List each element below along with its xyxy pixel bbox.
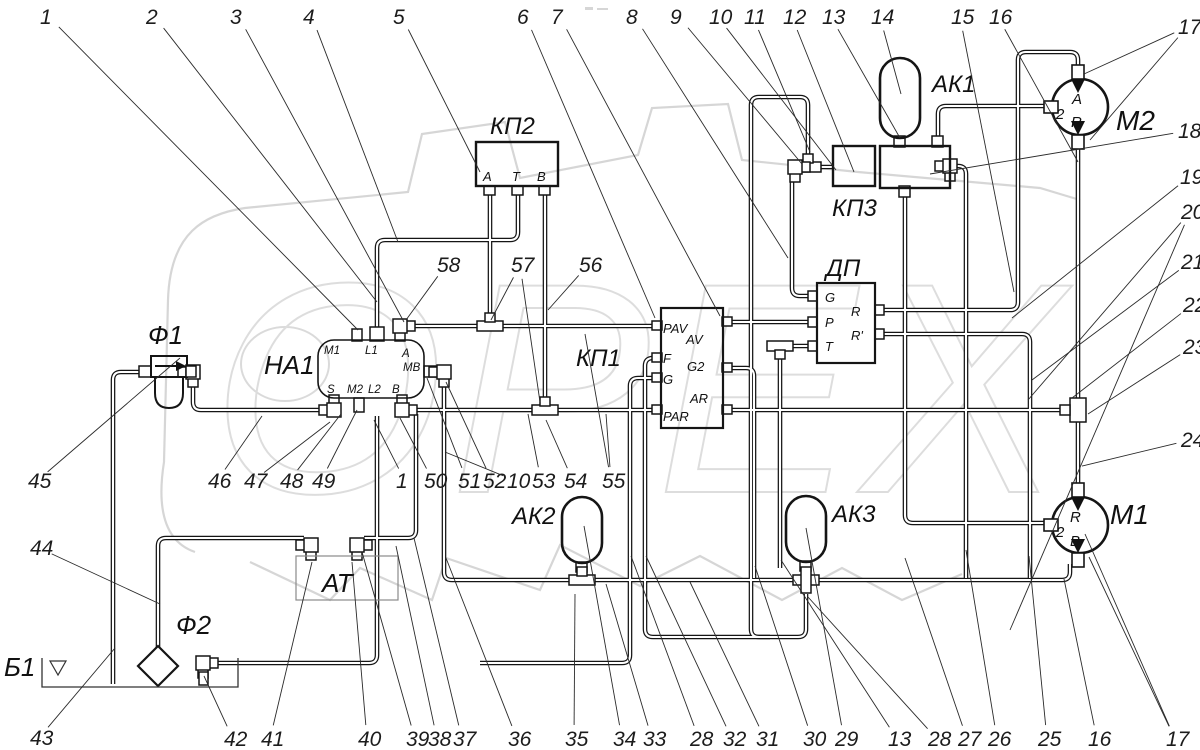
port-kp1-5: AR — [689, 391, 708, 406]
port-m2-2: R — [1071, 114, 1082, 131]
callout-28-58: 28 — [927, 728, 952, 750]
callout-54-37: 54 — [564, 470, 587, 493]
port-kp2-0: А — [482, 169, 492, 184]
callout-42-42: 42 — [224, 728, 248, 750]
callout-39-45: 39 — [406, 728, 430, 750]
label-at: АТ — [320, 568, 355, 598]
callout-45-24: 45 — [28, 470, 52, 493]
callout-47-28: 47 — [244, 470, 269, 493]
port-m1-2: B — [1070, 533, 1080, 550]
port-kp1-2: F — [663, 351, 672, 366]
port-dp-3: R — [851, 304, 860, 319]
callout-55-38: 55 — [602, 470, 626, 493]
callout-17-63: 17 — [1166, 728, 1191, 750]
hydraulic-schematic: ОРЕХКП2АТВКП3НА1M1L1AMBSM2L2BКП1PAVAVFGG… — [0, 0, 1200, 750]
callout-48-29: 48 — [280, 470, 304, 493]
port-m1-1: R — [1070, 509, 1081, 526]
callout-58-39: 58 — [437, 254, 461, 277]
callout-19-18: 19 — [1180, 166, 1200, 189]
callout-14-13: 14 — [871, 6, 894, 29]
port-m2-0: 2 — [1055, 106, 1065, 123]
port-dp-0: G — [825, 290, 835, 305]
label-na1: НА1 — [264, 350, 315, 380]
callout-15-14: 15 — [951, 6, 975, 29]
callout-21-20: 21 — [1180, 251, 1200, 274]
label-kp1: КП1 — [576, 345, 621, 372]
callout-32-53: 32 — [723, 728, 747, 750]
callout-5-4: 5 — [393, 6, 405, 29]
callout-50-32: 50 — [424, 470, 448, 493]
callout-52-34: 52 — [483, 470, 507, 493]
callout-33-51: 33 — [643, 728, 667, 750]
callout-31-54: 31 — [756, 728, 779, 750]
port-na1-3: MB — [403, 362, 421, 374]
callout-3-2: 3 — [230, 6, 242, 29]
callout-4-3: 4 — [303, 6, 315, 29]
watermark-text: ОРЕХ — [211, 220, 1073, 556]
callout-10-35: 10 — [507, 470, 531, 493]
callout-26-60: 26 — [987, 728, 1012, 750]
port-dp-1: P — [825, 315, 834, 330]
callout-13-57: 13 — [888, 728, 912, 750]
callout-53-36: 53 — [532, 470, 556, 493]
port-dp-2: T — [825, 339, 834, 354]
callout-17-16: 17 — [1178, 16, 1200, 39]
callout-22-21: 22 — [1182, 294, 1200, 317]
label-m1: М1 — [1110, 499, 1149, 530]
callout-36-48: 36 — [508, 728, 532, 750]
callout-25-61: 25 — [1037, 728, 1062, 750]
callout-20-19: 20 — [1180, 201, 1200, 224]
callout-7-6: 7 — [551, 6, 564, 29]
label-ak3: АК3 — [830, 501, 876, 528]
callout-27-59: 27 — [957, 728, 983, 750]
callout-40-44: 40 — [358, 728, 382, 750]
callout-43-26: 43 — [30, 727, 54, 750]
label-ak2: АК2 — [510, 503, 556, 530]
callout-10-9: 10 — [709, 6, 733, 29]
callout-34-50: 34 — [613, 728, 636, 750]
callout-12-11: 12 — [783, 6, 807, 29]
callout-11-10: 11 — [744, 6, 766, 29]
port-kp2-1: Т — [512, 169, 521, 184]
port-kp1-1: AV — [685, 332, 704, 347]
port-na1-4: S — [327, 384, 335, 396]
label-f1: Ф1 — [148, 320, 183, 350]
callout-30-55: 30 — [803, 728, 827, 750]
callout-56-41: 56 — [579, 254, 603, 277]
callout-18-17: 18 — [1178, 120, 1200, 143]
port-kp2-2: В — [537, 169, 546, 184]
callout-1-0: 1 — [40, 6, 52, 29]
port-na1-1: L1 — [365, 345, 378, 357]
callout-16-62: 16 — [1088, 728, 1112, 750]
label-dp: ДП — [823, 255, 861, 282]
label-m2: М2 — [1116, 105, 1155, 136]
port-na1-2: A — [401, 348, 410, 360]
callout-41-43: 41 — [261, 728, 284, 750]
port-dp-4: R' — [851, 328, 863, 343]
callout-51-33: 51 — [458, 470, 481, 493]
label-b1: Б1 — [4, 652, 35, 682]
label-f2: Ф2 — [176, 610, 212, 640]
label-kp3: КП3 — [832, 195, 878, 222]
callout-49-30: 49 — [312, 470, 336, 493]
callout-35-49: 35 — [565, 728, 589, 750]
callout-9-8: 9 — [670, 6, 682, 29]
callout-28-52: 28 — [689, 728, 714, 750]
callout-44-25: 44 — [30, 537, 53, 560]
port-na1-0: M1 — [324, 345, 340, 357]
port-kp1-0: PAV — [663, 321, 689, 336]
callout-24-23: 24 — [1180, 429, 1200, 452]
callout-16-15: 16 — [989, 6, 1013, 29]
callout-2-1: 2 — [145, 6, 158, 29]
label-kp2: КП2 — [490, 113, 535, 140]
callout-37-47: 37 — [453, 728, 478, 750]
port-m2-1: A — [1071, 91, 1082, 108]
port-na1-7: B — [392, 384, 400, 396]
callout-1-31: 1 — [396, 470, 408, 493]
schematic-canvas: ОРЕХКП2АТВКП3НА1M1L1AMBSM2L2BКП1PAVAVFGG… — [0, 0, 1200, 750]
port-kp1-4: G2 — [687, 359, 705, 374]
callout-13-12: 13 — [822, 6, 846, 29]
port-kp1-3: G — [663, 372, 673, 387]
callout-38-46: 38 — [428, 728, 452, 750]
port-kp1-6: PAR — [663, 409, 689, 424]
port-na1-5: M2 — [347, 384, 364, 396]
port-na1-6: L2 — [368, 384, 381, 396]
callout-46-27: 46 — [208, 470, 232, 493]
callout-8-7: 8 — [626, 6, 638, 29]
callout-23-22: 23 — [1182, 336, 1200, 359]
port-m1-0: 2 — [1055, 524, 1065, 541]
callout-29-56: 29 — [834, 728, 859, 750]
label-ak1: АК1 — [930, 71, 976, 98]
callout-57-40: 57 — [511, 254, 536, 277]
callout-6-5: 6 — [517, 6, 529, 29]
